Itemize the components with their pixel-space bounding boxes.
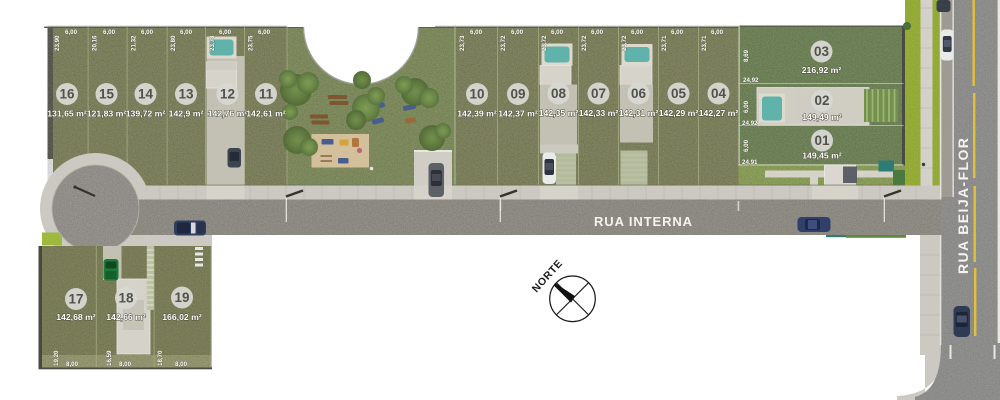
- svg-text:142,68 m²: 142,68 m²: [56, 312, 96, 322]
- svg-text:6,00: 6,00: [470, 29, 483, 36]
- svg-text:15: 15: [99, 87, 115, 102]
- svg-text:RUA BEIJA-FLOR: RUA BEIJA-FLOR: [955, 137, 971, 274]
- svg-text:216,92 m²: 216,92 m²: [802, 65, 842, 75]
- svg-text:19,20: 19,20: [53, 350, 60, 366]
- svg-text:10: 10: [469, 87, 484, 102]
- svg-text:19: 19: [174, 290, 189, 305]
- svg-text:6,00: 6,00: [65, 29, 78, 36]
- svg-text:23,72: 23,72: [541, 35, 548, 51]
- svg-text:18,70: 18,70: [157, 350, 164, 366]
- svg-text:23,80: 23,80: [170, 35, 177, 51]
- svg-text:23,72: 23,72: [500, 35, 507, 51]
- svg-text:6,00: 6,00: [631, 29, 644, 36]
- svg-text:01: 01: [814, 133, 830, 148]
- svg-text:142,35 m²: 142,35 m²: [539, 108, 579, 118]
- svg-text:6,00: 6,00: [591, 29, 604, 36]
- svg-text:RUA INTERNA: RUA INTERNA: [594, 214, 693, 229]
- svg-text:24,92: 24,92: [742, 120, 758, 127]
- svg-text:149,49 m²: 149,49 m²: [802, 112, 842, 122]
- svg-text:24,91: 24,91: [742, 159, 758, 166]
- svg-text:23,72: 23,72: [581, 35, 588, 51]
- svg-text:17: 17: [68, 292, 83, 307]
- svg-text:23,71: 23,71: [701, 35, 708, 51]
- svg-text:08: 08: [551, 86, 567, 101]
- svg-text:23,90: 23,90: [54, 35, 61, 51]
- svg-text:6,00: 6,00: [551, 29, 564, 36]
- svg-text:03: 03: [814, 44, 830, 59]
- svg-text:06: 06: [631, 86, 647, 101]
- svg-text:121,83 m²: 121,83 m²: [87, 109, 127, 119]
- svg-text:6,00: 6,00: [103, 29, 116, 36]
- svg-text:20,16: 20,16: [92, 35, 99, 51]
- svg-text:8,00: 8,00: [175, 361, 188, 368]
- svg-text:07: 07: [591, 86, 606, 101]
- svg-text:23,75: 23,75: [248, 35, 255, 51]
- svg-text:142,76 m²: 142,76 m²: [208, 109, 248, 119]
- svg-text:142,33 m²: 142,33 m²: [579, 108, 619, 118]
- svg-text:09: 09: [510, 87, 525, 102]
- svg-text:23,72: 23,72: [621, 35, 628, 51]
- svg-text:14: 14: [138, 87, 154, 102]
- svg-text:6,00: 6,00: [671, 29, 684, 36]
- svg-text:142,61 m²: 142,61 m²: [246, 109, 286, 119]
- svg-text:05: 05: [671, 86, 687, 101]
- svg-text:6,00: 6,00: [141, 29, 154, 36]
- svg-text:6,00: 6,00: [743, 100, 750, 113]
- svg-text:142,9 m²: 142,9 m²: [169, 109, 204, 119]
- svg-text:142,66 m²: 142,66 m²: [106, 312, 146, 322]
- svg-text:12: 12: [220, 87, 235, 102]
- svg-text:04: 04: [711, 86, 727, 101]
- svg-text:6,00: 6,00: [511, 29, 524, 36]
- svg-text:6,00: 6,00: [711, 29, 724, 36]
- svg-text:6,00: 6,00: [180, 29, 193, 36]
- svg-text:142,37 m²: 142,37 m²: [498, 109, 538, 119]
- svg-text:11: 11: [259, 87, 274, 102]
- svg-text:6,00: 6,00: [219, 29, 232, 36]
- svg-text:13: 13: [178, 87, 194, 102]
- svg-text:16: 16: [59, 87, 75, 102]
- svg-text:142,27 m²: 142,27 m²: [699, 108, 739, 118]
- svg-text:6,00: 6,00: [258, 29, 271, 36]
- svg-text:149,45 m²: 149,45 m²: [802, 151, 842, 161]
- svg-text:139,72 m²: 139,72 m²: [126, 109, 166, 119]
- svg-text:16,59: 16,59: [106, 350, 113, 366]
- svg-text:142,29 m²: 142,29 m²: [659, 108, 699, 118]
- svg-text:23,71: 23,71: [661, 35, 668, 51]
- svg-text:21,32: 21,32: [131, 35, 138, 51]
- svg-text:18: 18: [118, 291, 134, 306]
- svg-text:02: 02: [814, 93, 829, 108]
- svg-text:8,69: 8,69: [743, 49, 750, 62]
- svg-text:24,92: 24,92: [743, 77, 759, 84]
- svg-text:8,00: 8,00: [119, 361, 132, 368]
- svg-text:6,00: 6,00: [743, 139, 750, 152]
- svg-text:8,00: 8,00: [66, 361, 79, 368]
- svg-text:23,78: 23,78: [209, 35, 216, 51]
- svg-text:131,65 m²: 131,65 m²: [47, 109, 87, 119]
- svg-text:166,02 m²: 166,02 m²: [162, 312, 202, 322]
- svg-text:142,31 m²: 142,31 m²: [619, 108, 659, 118]
- svg-text:142,39 m²: 142,39 m²: [457, 109, 497, 119]
- svg-text:23,73: 23,73: [459, 35, 466, 51]
